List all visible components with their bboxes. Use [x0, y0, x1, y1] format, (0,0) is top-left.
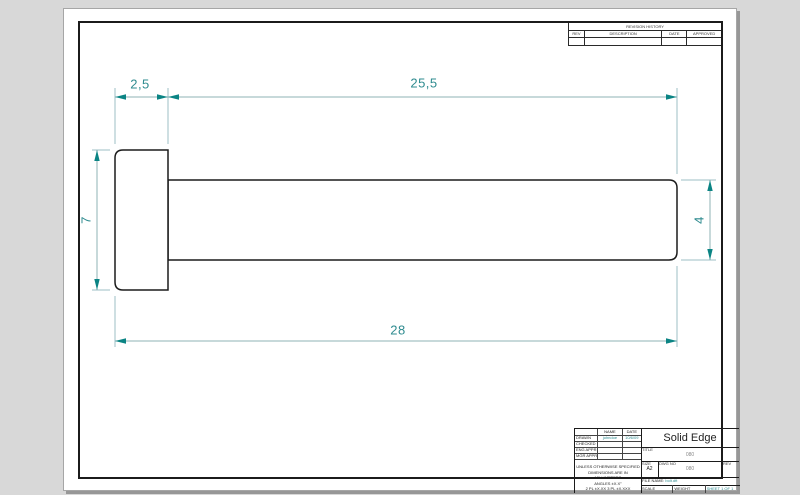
dimension-shaft-length: 25,5 [410, 76, 437, 91]
bolt-drawing [0, 0, 800, 495]
dimension-head-width: 2,5 [130, 77, 150, 92]
dimension-head-height: 7 [79, 216, 94, 224]
bolt-shaft [168, 180, 677, 260]
drawing-viewport: REVISION HISTORY REV DESCRIPTION DATE AP… [0, 0, 800, 495]
bolt-head [115, 150, 168, 290]
dimension-total-length: 28 [390, 323, 405, 338]
dimension-shaft-diameter: 4 [692, 216, 707, 224]
